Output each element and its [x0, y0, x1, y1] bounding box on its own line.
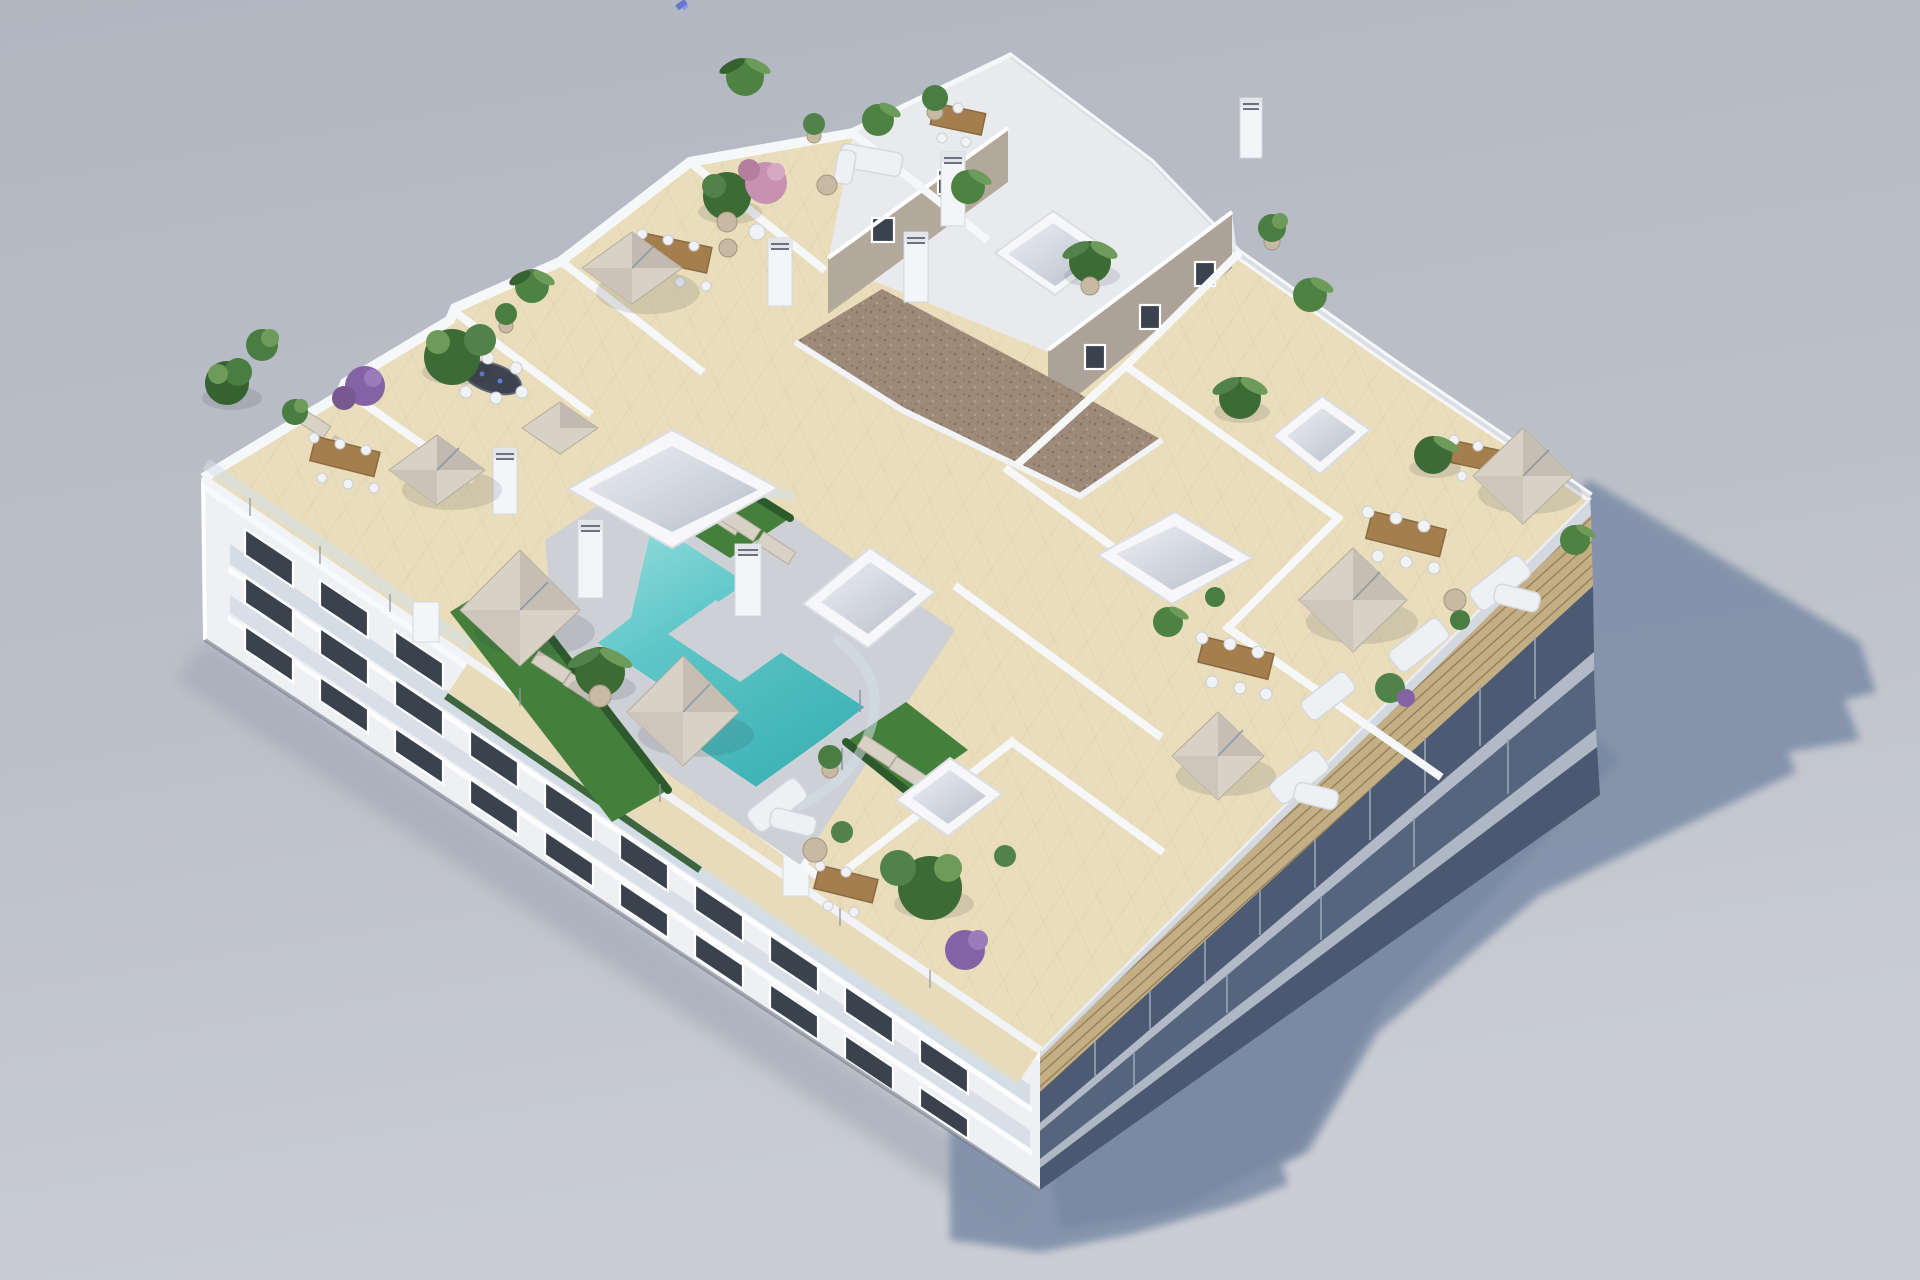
render-stage	[0, 0, 1920, 1280]
chimney	[904, 232, 928, 302]
side-table	[817, 175, 837, 195]
armchair	[749, 224, 765, 240]
chimney	[1240, 98, 1262, 158]
chimney	[735, 544, 761, 616]
plant	[282, 399, 308, 425]
chimney	[768, 238, 792, 306]
plant	[831, 821, 853, 843]
side-table	[1444, 589, 1466, 611]
plant	[422, 324, 496, 385]
side-table	[719, 239, 737, 257]
chimney	[578, 520, 603, 598]
rooftop-render	[0, 0, 1920, 1280]
side-table	[803, 838, 827, 862]
